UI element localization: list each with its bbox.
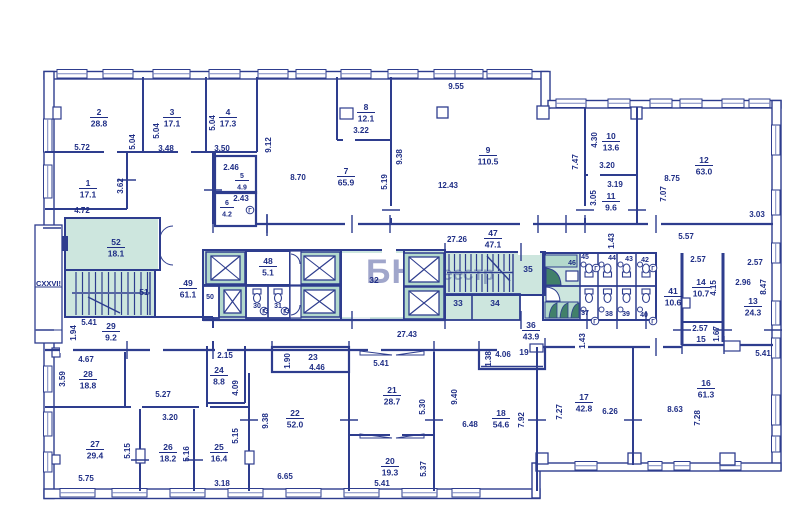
svg-text:31: 31 xyxy=(274,303,282,310)
svg-text:25: 25 xyxy=(214,442,224,452)
svg-text:9.12: 9.12 xyxy=(264,137,273,153)
svg-text:42.8: 42.8 xyxy=(576,404,593,414)
svg-text:45: 45 xyxy=(581,254,589,261)
svg-text:32: 32 xyxy=(369,275,379,285)
svg-text:4.06: 4.06 xyxy=(495,350,511,359)
svg-text:38: 38 xyxy=(605,311,613,318)
svg-text:50: 50 xyxy=(206,294,214,301)
svg-text:9.2: 9.2 xyxy=(105,333,117,343)
svg-text:20: 20 xyxy=(385,456,395,466)
svg-text:7: 7 xyxy=(344,166,349,176)
svg-text:27.43: 27.43 xyxy=(397,330,418,339)
svg-text:2.57: 2.57 xyxy=(747,258,763,267)
svg-text:5.16: 5.16 xyxy=(182,446,191,462)
svg-text:Г: Г xyxy=(593,320,597,326)
svg-text:11: 11 xyxy=(607,191,616,201)
svg-text:37: 37 xyxy=(581,310,589,317)
svg-text:2.43: 2.43 xyxy=(233,194,249,203)
svg-text:4: 4 xyxy=(226,107,231,117)
svg-text:54.6: 54.6 xyxy=(493,420,510,430)
svg-text:28: 28 xyxy=(83,369,93,379)
svg-text:12.43: 12.43 xyxy=(438,181,459,190)
svg-text:8.47: 8.47 xyxy=(759,279,768,295)
svg-text:44: 44 xyxy=(608,255,616,262)
svg-text:5.27: 5.27 xyxy=(155,390,171,399)
svg-text:4.15: 4.15 xyxy=(709,280,718,296)
svg-text:6: 6 xyxy=(225,200,229,207)
svg-text:5.04: 5.04 xyxy=(128,134,137,150)
svg-text:5.41: 5.41 xyxy=(373,359,389,368)
svg-text:2.46: 2.46 xyxy=(223,163,239,172)
svg-text:46: 46 xyxy=(568,260,576,267)
svg-text:G: G xyxy=(263,308,269,315)
svg-text:Г: Г xyxy=(248,209,252,215)
svg-text:29: 29 xyxy=(106,321,116,331)
svg-text:7.28: 7.28 xyxy=(693,410,702,426)
svg-text:2.57: 2.57 xyxy=(692,324,708,333)
svg-text:8.75: 8.75 xyxy=(664,174,680,183)
svg-text:110.5: 110.5 xyxy=(478,157,499,167)
svg-text:4.72: 4.72 xyxy=(74,206,90,215)
svg-text:12: 12 xyxy=(699,155,709,165)
svg-text:3: 3 xyxy=(170,107,175,117)
svg-text:1.90: 1.90 xyxy=(283,353,292,369)
svg-text:40: 40 xyxy=(640,312,648,319)
svg-text:1.94: 1.94 xyxy=(69,325,78,341)
svg-text:12.1: 12.1 xyxy=(358,114,375,124)
svg-text:1.67: 1.67 xyxy=(712,326,721,342)
svg-text:5: 5 xyxy=(240,173,244,180)
svg-text:6.26: 6.26 xyxy=(602,407,618,416)
svg-text:5.57: 5.57 xyxy=(678,232,694,241)
svg-text:5.30: 5.30 xyxy=(418,399,427,415)
svg-text:7.92: 7.92 xyxy=(517,412,526,428)
svg-text:29.4: 29.4 xyxy=(87,451,104,461)
svg-text:17.1: 17.1 xyxy=(164,119,181,129)
svg-text:33: 33 xyxy=(453,298,463,308)
svg-text:Г: Г xyxy=(651,320,655,326)
svg-text:52.0: 52.0 xyxy=(287,420,304,430)
svg-text:3.03: 3.03 xyxy=(749,210,765,219)
svg-text:5.15: 5.15 xyxy=(231,428,240,444)
svg-text:39: 39 xyxy=(622,311,630,318)
svg-text:8: 8 xyxy=(364,102,369,112)
svg-text:еестр: еестр xyxy=(442,264,494,285)
svg-text:CXXVI!: CXXVI! xyxy=(36,279,61,288)
svg-text:3.19: 3.19 xyxy=(607,180,623,189)
svg-text:5.72: 5.72 xyxy=(74,143,90,152)
svg-text:3.20: 3.20 xyxy=(162,413,178,422)
svg-text:1: 1 xyxy=(86,178,91,188)
svg-text:8.8: 8.8 xyxy=(213,377,225,387)
svg-text:47.1: 47.1 xyxy=(485,240,502,250)
svg-text:23: 23 xyxy=(308,352,318,362)
svg-text:48: 48 xyxy=(263,256,273,266)
svg-text:8.70: 8.70 xyxy=(290,173,306,182)
svg-text:47: 47 xyxy=(488,228,498,238)
svg-text:8.63: 8.63 xyxy=(667,405,683,414)
svg-text:41: 41 xyxy=(668,286,678,296)
svg-text:2: 2 xyxy=(97,107,102,117)
svg-text:3.18: 3.18 xyxy=(214,479,230,488)
svg-text:3.22: 3.22 xyxy=(353,126,369,135)
svg-text:3.50: 3.50 xyxy=(214,144,230,153)
svg-text:43.9: 43.9 xyxy=(523,332,540,342)
svg-text:3.20: 3.20 xyxy=(599,161,615,170)
svg-text:27.26: 27.26 xyxy=(447,235,468,244)
svg-text:30: 30 xyxy=(253,303,261,310)
svg-text:Г: Г xyxy=(651,267,655,273)
svg-text:4.2: 4.2 xyxy=(222,212,232,219)
svg-text:3.05: 3.05 xyxy=(589,190,598,206)
svg-text:42: 42 xyxy=(641,257,649,264)
svg-text:17: 17 xyxy=(579,392,589,402)
svg-text:10.7: 10.7 xyxy=(693,289,710,299)
svg-text:35: 35 xyxy=(523,264,533,274)
svg-text:2.57: 2.57 xyxy=(690,255,706,264)
svg-text:2.96: 2.96 xyxy=(735,278,751,287)
svg-text:3.62: 3.62 xyxy=(116,178,125,194)
svg-text:18.2: 18.2 xyxy=(160,454,177,464)
svg-text:6.48: 6.48 xyxy=(462,420,478,429)
svg-text:18.8: 18.8 xyxy=(80,381,97,391)
svg-text:7.27: 7.27 xyxy=(555,404,564,420)
svg-text:24: 24 xyxy=(214,365,224,375)
svg-text:21: 21 xyxy=(387,385,397,395)
svg-text:19.3: 19.3 xyxy=(382,468,399,478)
svg-text:13.6: 13.6 xyxy=(603,143,620,153)
svg-text:18.1: 18.1 xyxy=(108,249,125,259)
svg-text:15: 15 xyxy=(696,334,706,344)
svg-text:1.43: 1.43 xyxy=(607,233,616,249)
svg-text:3.48: 3.48 xyxy=(158,144,174,153)
svg-text:4.9: 4.9 xyxy=(237,185,247,192)
svg-text:5.41: 5.41 xyxy=(755,349,771,358)
svg-text:49: 49 xyxy=(183,278,193,288)
svg-text:4.30: 4.30 xyxy=(590,132,599,148)
svg-text:9.6: 9.6 xyxy=(605,203,617,213)
svg-text:13: 13 xyxy=(748,296,758,306)
svg-text:9: 9 xyxy=(486,145,491,155)
svg-text:2.15: 2.15 xyxy=(217,351,233,360)
svg-text:5.19: 5.19 xyxy=(380,174,389,190)
svg-text:43: 43 xyxy=(625,256,633,263)
svg-text:52: 52 xyxy=(111,237,121,247)
svg-text:16: 16 xyxy=(701,378,711,388)
svg-text:5.75: 5.75 xyxy=(78,474,94,483)
svg-text:61.1: 61.1 xyxy=(180,290,197,300)
svg-text:G: G xyxy=(284,308,290,315)
svg-text:10.6: 10.6 xyxy=(665,298,682,308)
svg-text:34: 34 xyxy=(490,298,500,308)
svg-text:10: 10 xyxy=(606,131,616,141)
svg-text:Г: Г xyxy=(594,267,598,273)
svg-text:1.43: 1.43 xyxy=(578,333,587,349)
svg-text:22: 22 xyxy=(290,408,300,418)
svg-text:9.38: 9.38 xyxy=(261,413,270,429)
svg-text:17.1: 17.1 xyxy=(80,190,97,200)
svg-text:7.47: 7.47 xyxy=(571,154,580,170)
svg-text:5.15: 5.15 xyxy=(123,443,132,459)
svg-text:5.37: 5.37 xyxy=(419,461,428,477)
svg-text:3.59: 3.59 xyxy=(58,371,67,387)
svg-text:65.9: 65.9 xyxy=(338,178,355,188)
svg-text:17.3: 17.3 xyxy=(220,119,237,129)
svg-text:7.07: 7.07 xyxy=(659,186,668,202)
svg-text:19: 19 xyxy=(519,347,529,357)
svg-text:5.41: 5.41 xyxy=(374,479,390,488)
svg-text:51: 51 xyxy=(139,287,149,297)
svg-text:18: 18 xyxy=(496,408,506,418)
svg-text:1.38: 1.38 xyxy=(484,351,493,367)
svg-text:27: 27 xyxy=(90,439,100,449)
svg-text:5.04: 5.04 xyxy=(152,123,161,139)
svg-text:4.67: 4.67 xyxy=(78,355,94,364)
svg-text:9.38: 9.38 xyxy=(395,149,404,165)
svg-text:4.46: 4.46 xyxy=(309,363,325,372)
svg-text:5.04: 5.04 xyxy=(208,115,217,131)
svg-text:24.3: 24.3 xyxy=(745,308,762,318)
svg-text:9.55: 9.55 xyxy=(448,82,464,91)
svg-text:14: 14 xyxy=(696,277,706,287)
svg-text:26: 26 xyxy=(163,442,173,452)
svg-text:4.09: 4.09 xyxy=(231,380,240,396)
svg-text:16.4: 16.4 xyxy=(211,454,228,464)
svg-text:28.8: 28.8 xyxy=(91,119,108,129)
svg-text:6.65: 6.65 xyxy=(277,472,293,481)
svg-text:9.40: 9.40 xyxy=(450,389,459,405)
svg-text:36: 36 xyxy=(526,320,536,330)
svg-text:5.41: 5.41 xyxy=(81,318,97,327)
svg-text:61.3: 61.3 xyxy=(698,390,715,400)
svg-text:63.0: 63.0 xyxy=(696,167,713,177)
svg-text:5.1: 5.1 xyxy=(262,268,274,278)
svg-text:28.7: 28.7 xyxy=(384,397,401,407)
